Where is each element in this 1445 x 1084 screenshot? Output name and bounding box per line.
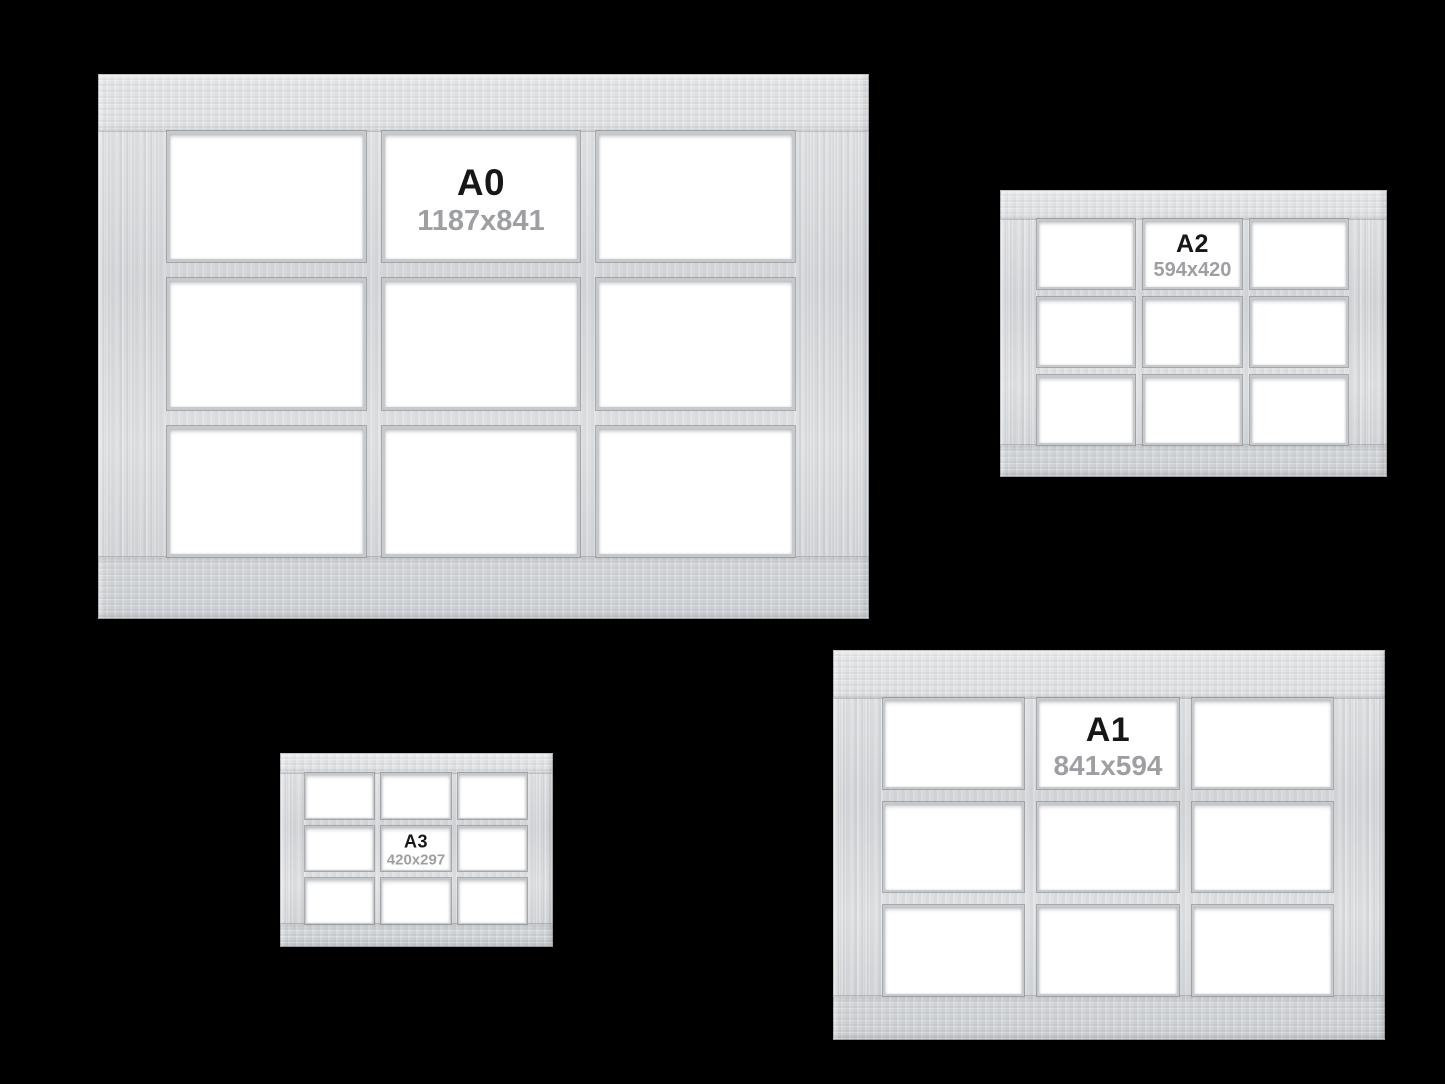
window-pane [1250, 297, 1348, 367]
window-pane [1250, 375, 1348, 445]
frame-top-rail [98, 74, 869, 132]
window-pane [1037, 802, 1178, 893]
window-pane [596, 278, 795, 409]
window-pane [1037, 375, 1135, 445]
window-pane [1143, 375, 1241, 445]
size-label-block: A3 420x297 [387, 831, 445, 869]
size-label-block: A2 594x420 [1154, 230, 1232, 281]
size-label-block: A1 841x594 [1053, 711, 1162, 781]
pane-grid: A3 420x297 [305, 773, 527, 924]
window-pane-labeled: A3 420x297 [381, 826, 450, 872]
window-pane [382, 278, 581, 409]
window-pane [1037, 297, 1135, 367]
paper-size-label: A1 [1053, 711, 1162, 749]
window-pane [382, 426, 581, 557]
pane-grid: A0 1187x841 [167, 131, 795, 557]
window-pane [167, 278, 366, 409]
window-pane-labeled: A2 594x420 [1143, 219, 1241, 289]
window-pane [381, 773, 450, 819]
frame-left-stile [98, 131, 167, 557]
frame-right-stile [1333, 698, 1385, 996]
frame-bottom-rail [98, 556, 869, 619]
window-pane [883, 698, 1024, 789]
frame-right-stile [795, 131, 869, 557]
window-pane-labeled: A0 1187x841 [382, 131, 581, 262]
frame-top-rail [280, 753, 553, 774]
paper-size-label: A2 [1154, 230, 1232, 258]
window-pane [305, 878, 374, 924]
window-pane [458, 826, 527, 872]
window-pane [1192, 698, 1333, 789]
window-pane [1037, 219, 1135, 289]
frame-top-rail [833, 650, 1385, 699]
window-frame-a1: A1 841x594 [833, 650, 1385, 1040]
frame-left-stile [280, 773, 305, 924]
pane-grid: A2 594x420 [1037, 219, 1348, 445]
frame-left-stile [833, 698, 883, 996]
size-comparison-collage: A0 1187x841 A2 594x420 [0, 0, 1445, 1084]
window-pane [883, 905, 1024, 996]
pane-grid: A1 841x594 [883, 698, 1333, 996]
window-pane [381, 878, 450, 924]
window-pane [1250, 219, 1348, 289]
frame-right-stile [1348, 219, 1387, 445]
frame-top-rail [1000, 190, 1387, 220]
window-pane [1143, 297, 1241, 367]
frame-bottom-rail [833, 995, 1385, 1040]
window-pane [1037, 905, 1178, 996]
window-pane [458, 878, 527, 924]
size-label-block: A0 1187x841 [417, 162, 544, 237]
window-pane [883, 802, 1024, 893]
paper-dimensions-label: 1187x841 [417, 205, 544, 237]
window-pane [1192, 905, 1333, 996]
window-pane [305, 773, 374, 819]
window-frame-a0: A0 1187x841 [98, 74, 869, 619]
frame-right-stile [527, 773, 553, 924]
window-pane [596, 426, 795, 557]
window-pane [167, 131, 366, 262]
window-pane [458, 773, 527, 819]
paper-dimensions-label: 420x297 [387, 852, 445, 869]
frame-bottom-rail [280, 923, 553, 947]
window-pane [305, 826, 374, 872]
window-frame-a2: A2 594x420 [1000, 190, 1387, 477]
paper-size-label: A0 [417, 162, 544, 203]
paper-size-label: A3 [387, 831, 445, 851]
window-pane-labeled: A1 841x594 [1037, 698, 1178, 789]
window-pane [167, 426, 366, 557]
window-pane [596, 131, 795, 262]
frame-bottom-rail [1000, 444, 1387, 477]
paper-dimensions-label: 594x420 [1154, 259, 1232, 281]
window-pane [1192, 802, 1333, 893]
paper-dimensions-label: 841x594 [1053, 750, 1162, 781]
frame-left-stile [1000, 219, 1037, 445]
window-frame-a3: A3 420x297 [280, 753, 553, 947]
